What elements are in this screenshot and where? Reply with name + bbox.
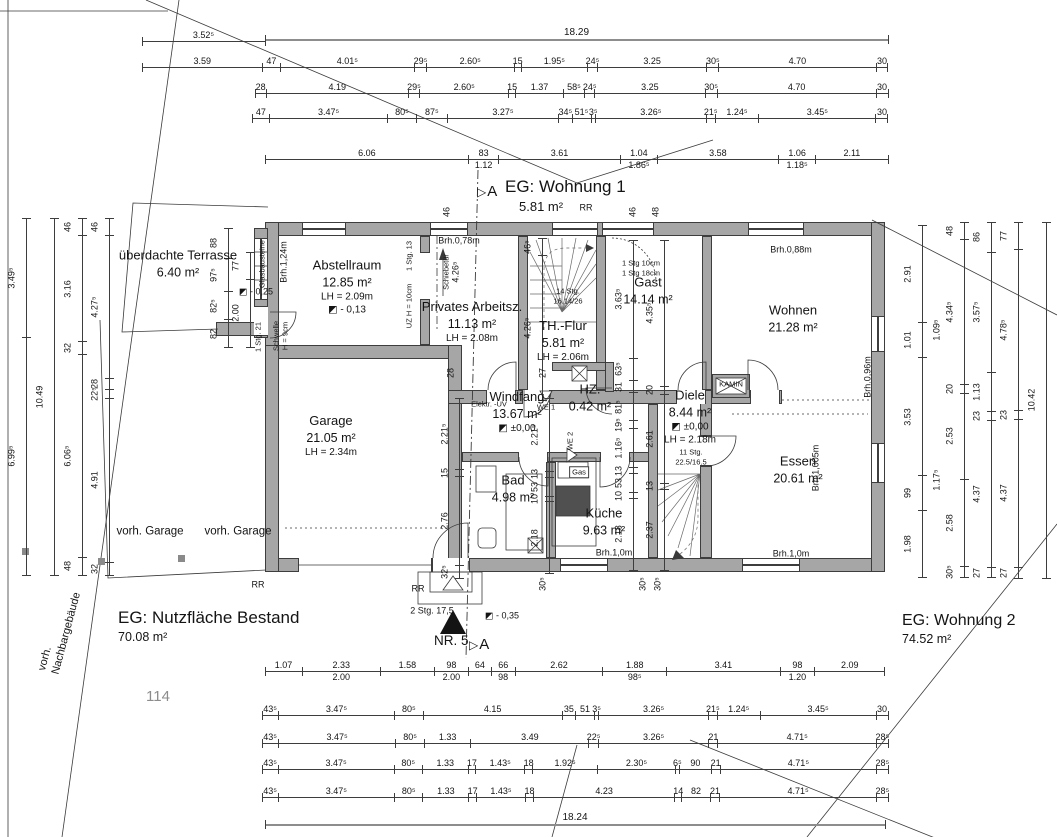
- title-wohnung1: EG: Wohnung 1 5.81 m²: [505, 177, 626, 214]
- house-number: NR. 5: [434, 633, 469, 648]
- room-info: LH = 2.18m: [664, 434, 716, 447]
- plan-label: 46: [629, 207, 638, 217]
- plan-label: RR: [252, 581, 265, 590]
- title-bestand: EG: Nutzfläche Bestand 70.08 m²: [118, 608, 299, 644]
- section-marker-top: ▷A: [477, 183, 497, 200]
- room-area: 12.85 m²: [313, 274, 382, 290]
- room-area: 14.14 m²: [623, 291, 672, 307]
- room-label-privates-arbeitsz-: Privates Arbeitsz.11.13 m²LH = 2.08m: [422, 299, 522, 345]
- plan-label: 22.5/16.5: [675, 458, 706, 466]
- plan-label: ◩ - 0,35: [485, 612, 519, 621]
- plan-label: Brh.1,0m: [773, 550, 810, 559]
- room-area: 0.42 m²: [569, 398, 611, 414]
- room-label-diele: Diele8.44 m²◩ ±0,00LH = 2.18m: [664, 387, 716, 446]
- plan-label: Brh.1,0m: [596, 549, 633, 558]
- room-label-abstellraum: Abstellraum12.85 m²LH = 2.09m◩ - 0,13: [313, 257, 382, 316]
- title-wohnung2-area: 74.52 m²: [902, 632, 1016, 646]
- plan-label: 2 Stg. 17,5: [410, 607, 454, 616]
- title-wohnung1-area: 5.81 m²: [519, 199, 626, 214]
- room-info: LH = 2.08m: [422, 332, 522, 345]
- room-name: Garage: [305, 413, 357, 430]
- plan-label: Glasbausteine: [258, 240, 266, 288]
- room-label-küche: Küche9.63 m²: [583, 505, 625, 538]
- fixtures: [22, 236, 871, 634]
- plan-label: Brh.0,96m: [864, 356, 873, 398]
- plan-label: Brh.1,24m: [280, 241, 289, 283]
- room-label-th-flur: TH.-Flur5.81 m²LH = 2.06m: [537, 318, 589, 364]
- room-info: ◩ - 0,13: [313, 304, 382, 317]
- plan-label: vorh. Garage: [204, 526, 271, 538]
- plan-label: 1 Stg. 13: [405, 241, 413, 271]
- section-letter: A: [479, 636, 489, 653]
- room-area: 5.81 m²: [537, 335, 589, 351]
- room-area: 21.28 m²: [768, 319, 817, 335]
- room-info: LH = 2.34m: [305, 446, 357, 459]
- stair-treppenhaus-icon: [530, 238, 596, 330]
- room-name: überdachte Terrasse: [119, 247, 237, 264]
- plan-label: 1 Stg 10cm: [622, 259, 660, 267]
- plan-label: RR: [412, 585, 425, 594]
- room-name: Bad: [492, 472, 534, 489]
- plan-label: 48: [652, 207, 661, 217]
- room-info: LH = 2.06m: [537, 351, 589, 364]
- room-name: HZ.: [569, 381, 611, 398]
- room-label-garage: Garage21.05 m²LH = 2.34m: [305, 413, 357, 459]
- plan-label: 14 Stg.: [556, 287, 580, 295]
- stair-wohnung2-icon: [658, 474, 700, 560]
- plan-label: UZ H = 10cm: [405, 284, 413, 328]
- plan-label: Schiebetür: [442, 254, 450, 290]
- plan-label: 30⁵: [639, 577, 648, 591]
- plan-label: WE 2: [566, 432, 574, 450]
- room-area: 21.05 m²: [305, 430, 357, 446]
- plan-label: 27: [539, 368, 548, 378]
- plan-label: 1 Stg. 21: [254, 322, 262, 352]
- plan-label: Brh.0,88m: [770, 246, 812, 255]
- room-info: ◩ ±0,00: [664, 421, 716, 434]
- plan-label: 28: [447, 368, 456, 378]
- plan-label: 4.26⁵: [452, 261, 461, 282]
- plan-label: 16.14/26: [553, 297, 582, 305]
- plan-label: Schwelle: [272, 321, 280, 351]
- room-label-wohnen: Wohnen21.28 m²: [768, 302, 817, 335]
- room-area: 13.67 m²: [490, 406, 545, 422]
- plan-label: Brh.0,78m: [438, 237, 480, 246]
- room-label-essen: Essen20.61 m²: [773, 453, 822, 486]
- title-wohnung1-label: EG: Wohnung 1: [505, 177, 626, 197]
- room-name: Wohnen: [768, 302, 817, 319]
- plan-label: H = 9cm: [281, 322, 289, 350]
- section-triangle-icon: ▷: [469, 638, 478, 652]
- section-triangle-icon: ▷: [477, 185, 486, 199]
- room-name: TH.-Flur: [537, 318, 589, 335]
- room-name: Gast: [623, 274, 672, 291]
- room-area: 8.44 m²: [664, 404, 716, 420]
- title-wohnung2-label: EG: Wohnung 2: [902, 612, 1016, 630]
- room-name: Diele: [664, 387, 716, 404]
- room-area: 20.61 m²: [773, 470, 822, 486]
- room-label-gast: Gast14.14 m²: [623, 274, 672, 307]
- room-area: 9.63 m²: [583, 522, 625, 538]
- room-label-bad: Bad4.98 m²: [492, 472, 534, 505]
- plan-label: 30⁵: [539, 577, 548, 591]
- title-wohnung2: EG: Wohnung 2 74.52 m²: [902, 612, 1016, 646]
- section-marker-bottom: ▷A: [469, 636, 489, 653]
- plan-label: Gas: [569, 466, 589, 478]
- room-name: Windfang: [490, 389, 545, 406]
- room-area: 4.98 m²: [492, 489, 534, 505]
- title-bestand-area: 70.08 m²: [118, 630, 299, 644]
- room-info: LH = 2.09m: [313, 291, 382, 304]
- room-area: 11.13 m²: [422, 316, 522, 332]
- room-name: Privates Arbeitsz.: [422, 299, 522, 316]
- room-name: Küche: [583, 505, 625, 522]
- room-area: 6.40 m²: [119, 264, 237, 280]
- section-letter: A: [487, 183, 497, 200]
- plan-label: vorh. Garage: [116, 526, 183, 538]
- room-label-hz-: HZ.0.42 m²: [569, 381, 611, 414]
- plan-label: 1.09⁵: [933, 319, 942, 340]
- plan-label: 11 Stg.: [679, 448, 702, 456]
- room-name: Essen: [773, 453, 822, 470]
- room-label-windfang: Windfang13.67 m²◩ ±0,00: [490, 389, 545, 435]
- plan-label: KAMIN: [719, 380, 743, 388]
- parcel-number: 114: [146, 688, 170, 705]
- plan-label: 30⁵: [654, 577, 663, 591]
- title-bestand-label: EG: Nutzfläche Bestand: [118, 608, 299, 628]
- plan-label: 46: [443, 207, 452, 217]
- plan-label: ◩ - 0,25: [239, 288, 273, 297]
- room-label-überdachte-terrasse: überdachte Terrasse6.40 m²: [119, 247, 237, 280]
- room-name: Abstellraum: [313, 257, 382, 274]
- room-info: ◩ ±0,00: [490, 422, 545, 435]
- floor-plan-canvas: 3.52⁵ 18.29 3.59474.01⁵29⁵2.60⁵151.95⁵24…: [0, 0, 1057, 837]
- plan-label: 1.17⁵: [933, 469, 942, 490]
